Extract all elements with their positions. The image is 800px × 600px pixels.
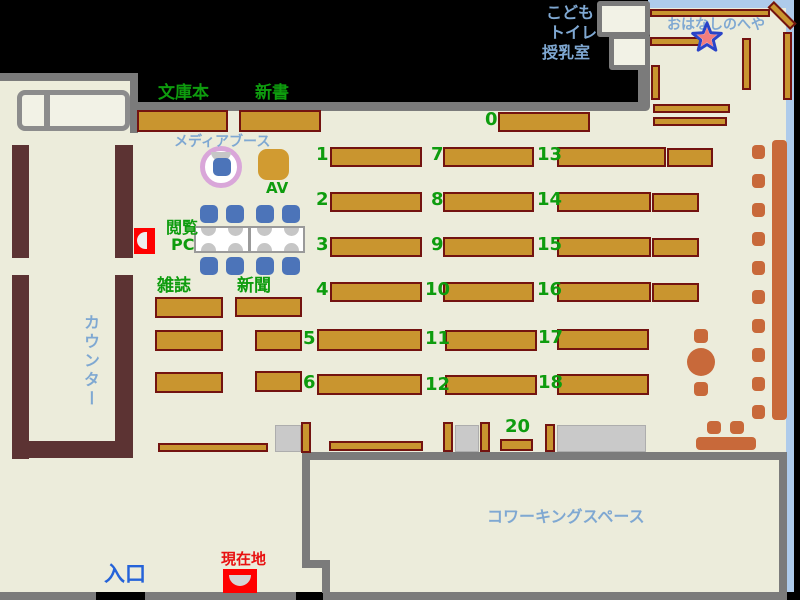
shelf-magazine-2: [155, 330, 223, 351]
counter-segment: [115, 145, 133, 258]
wall-coworking-top: [302, 452, 787, 460]
label-num-1: 1: [316, 146, 329, 164]
shelf-low-vertical: [301, 422, 311, 453]
window-bench: [772, 140, 787, 420]
shelf-bunkobon: [137, 110, 228, 132]
label-num-5: 5: [303, 330, 316, 348]
shelf-16-a: [557, 282, 651, 302]
pc-monitor: [228, 243, 243, 251]
pc-chair: [256, 205, 274, 223]
shelf-17: [557, 329, 649, 350]
wall-coworking-jog-v: [322, 560, 330, 593]
label-num-15: 15: [537, 236, 562, 254]
shelf-20: [500, 439, 533, 451]
corner-stool: [730, 421, 744, 434]
counter-segment: [12, 275, 29, 459]
label-media-booth: メディアブース: [174, 135, 270, 149]
label-num-6: 6: [303, 374, 316, 392]
shelf-story-bottom-1: [653, 104, 730, 113]
shelf-low-vertical: [545, 424, 555, 452]
shelf-story-left: [651, 65, 660, 100]
label-num-9: 9: [431, 236, 444, 254]
shelf-15-a: [557, 237, 651, 257]
label-iriguchi: 入口: [104, 564, 146, 585]
label-toire: トイレ: [549, 25, 597, 41]
return-desk: [17, 90, 130, 131]
label-num-4: 4: [316, 281, 329, 299]
wall-bottom-right: [323, 592, 787, 600]
shelf-14-b: [652, 193, 699, 212]
shelf-7: [443, 147, 534, 167]
label-shinsho: 新書: [255, 85, 289, 102]
wall-coworking-left: [302, 452, 310, 568]
shelf-13-a: [557, 147, 666, 167]
shelf-0: [498, 112, 590, 132]
pc-monitor: [257, 243, 272, 251]
label-etsuran-line1: 閲覧: [166, 220, 198, 236]
shelf-18: [557, 374, 649, 395]
label-kodomo: こども: [546, 5, 594, 21]
label-num-11: 11: [425, 330, 450, 348]
bench-stool: [752, 348, 765, 362]
shelf-5-left: [255, 330, 302, 351]
corner-bench: [696, 437, 756, 450]
pc-chair: [282, 205, 300, 223]
label-genzaichi: 現在地: [221, 552, 266, 567]
shelf-12: [445, 375, 537, 395]
bench-stool: [752, 203, 765, 217]
bench-stool: [752, 145, 765, 159]
label-num-12: 12: [425, 376, 450, 394]
shelf-9: [443, 237, 534, 257]
label-etsuran-line2: PC: [171, 237, 194, 253]
counter-segment: [12, 441, 133, 458]
round-table-stool: [694, 382, 708, 396]
kids-toilet-room-upper: [597, 1, 650, 37]
label-counter: カウンター: [82, 314, 98, 409]
pc-chair: [282, 257, 300, 275]
shelf-15-b: [652, 238, 699, 257]
bench-stool: [752, 261, 765, 275]
label-num-20: 20: [505, 418, 530, 436]
wall-bottom-mid: [145, 592, 296, 600]
shelf-14-a: [557, 192, 651, 212]
shelf-story-bottom-2: [653, 117, 727, 126]
shelf-16-b: [652, 283, 699, 302]
shelf-magazine-1: [155, 297, 223, 318]
round-table: [687, 348, 715, 376]
pc-monitor: [201, 243, 216, 251]
label-zasshi: 雑誌: [157, 278, 191, 295]
pc-chair: [200, 257, 218, 275]
shelf-2: [330, 192, 422, 212]
shelf-8: [443, 192, 534, 212]
bench-stool: [752, 174, 765, 188]
shelf-story-right: [783, 32, 792, 100]
media-booth-chair: [213, 158, 231, 176]
shelf-6: [317, 374, 422, 395]
shelf-shinsho: [239, 110, 321, 132]
counter-segment: [12, 145, 29, 258]
bench-stool: [752, 290, 765, 304]
wall-toilet-vertical: [638, 66, 650, 106]
shelf-newspaper: [235, 297, 302, 317]
shelf-story-top: [650, 9, 770, 17]
shelf-story-inner: [742, 38, 751, 90]
bench-stool: [752, 405, 765, 419]
shelf-5: [317, 329, 422, 351]
label-num-16: 16: [537, 281, 562, 299]
label-bunkobon: 文庫本: [158, 85, 209, 102]
shelf-low-long-2: [329, 441, 423, 451]
wall-topleft-horizontal: [0, 73, 137, 81]
label-num-2: 2: [316, 191, 329, 209]
wall-bottom-left: [0, 592, 96, 600]
work-table-block: [557, 425, 646, 452]
label-ohanashi-no-heya: おはなしのへや: [667, 18, 765, 32]
wall-coworking-right: [779, 452, 787, 593]
library-floor-map: 文庫本新書雑誌新聞閲覧PCAV0171328143915410165111761…: [0, 0, 800, 600]
shelf-11: [445, 330, 537, 351]
fire-extinguisher-icon: [137, 232, 147, 249]
shelf-13-b: [667, 148, 713, 167]
return-desk-divider: [44, 92, 50, 129]
shelf-4: [330, 282, 422, 302]
shelf-story-mid: [650, 37, 715, 46]
shelf-low-long-1: [158, 443, 268, 452]
av-booth: [258, 149, 289, 180]
label-junyushitsu: 授乳室: [542, 45, 590, 61]
shelf-3: [330, 237, 422, 257]
corner-stool: [707, 421, 721, 434]
label-num-17: 17: [538, 329, 563, 347]
label-num-0: 0: [485, 111, 498, 129]
pc-chair: [226, 205, 244, 223]
label-num-10: 10: [425, 281, 450, 299]
label-num-8: 8: [431, 191, 444, 209]
pc-monitor: [284, 243, 299, 251]
bench-stool: [752, 232, 765, 246]
label-num-14: 14: [537, 191, 562, 209]
kids-toilet-room-lower: [609, 34, 650, 70]
label-num-3: 3: [316, 236, 329, 254]
shelf-10: [443, 282, 534, 302]
label-num-13: 13: [537, 146, 562, 164]
label-coworking-space: コワーキングスペース: [487, 509, 645, 525]
label-shinbun: 新聞: [237, 278, 271, 295]
shelf-1: [330, 147, 422, 167]
label-num-7: 7: [431, 146, 444, 164]
label-av: AV: [266, 181, 288, 196]
counter-segment: [115, 275, 133, 441]
shelf-6-left: [255, 371, 302, 392]
shelf-low-vertical: [480, 422, 490, 452]
bench-stool: [752, 377, 765, 391]
round-table-stool: [694, 329, 708, 343]
label-num-18: 18: [538, 374, 563, 392]
pc-chair: [256, 257, 274, 275]
pc-chair: [226, 257, 244, 275]
pillar-block: [275, 425, 301, 452]
pillar-block: [455, 425, 479, 452]
shelf-magazine-3: [155, 372, 223, 393]
pc-chair: [200, 205, 218, 223]
bench-stool: [752, 319, 765, 333]
shelf-low-vertical: [443, 422, 453, 452]
